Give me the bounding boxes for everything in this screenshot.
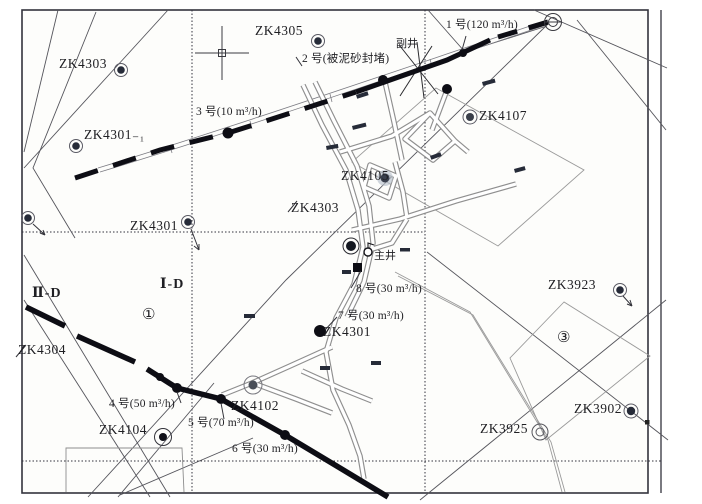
borehole-label-zk4303-nw: ZK4303	[59, 57, 107, 71]
section-line-label-I: Ⅰ-D	[160, 278, 184, 293]
inflow-label-7: 7 号(30 m³/h)	[338, 310, 404, 322]
inflow-label-4: 4 号(50 m³/h)	[109, 398, 175, 410]
mine-hydrogeology-map: ZK4303 ZK4305 ZK4301₋₁ ZK4107 ZK4105 ZK4…	[0, 0, 702, 504]
inflow-dot-extra	[156, 373, 164, 381]
borehole-label-zk4305: ZK4305	[255, 24, 303, 38]
small-square-mark	[645, 420, 650, 425]
borehole-label-zk3902: ZK3902	[574, 402, 622, 416]
inflow-label-2: 2 号(被泥砂封堵)	[302, 53, 389, 65]
borehole-label-zk4301-w: ZK4301	[130, 219, 178, 233]
map-frame	[22, 10, 661, 493]
aux-shaft-label: 副井	[396, 39, 418, 51]
inflow-dot-4	[172, 383, 182, 393]
section-line-label-II: Ⅱ-D	[32, 287, 62, 302]
borehole-label-zk3925: ZK3925	[480, 422, 528, 436]
inflow-dot-8	[353, 263, 362, 272]
zone-label-3: ③	[557, 331, 570, 347]
borehole-label-zk4301-1: ZK4301₋₁	[84, 128, 145, 142]
main-shaft-label: 主井	[374, 251, 396, 263]
inflow-dot-well	[442, 84, 452, 94]
inflow-dot-5	[216, 394, 226, 404]
inflow-label-5: 5 号(70 m³/h)	[188, 417, 254, 429]
borehole-label-zk3923: ZK3923	[548, 278, 596, 292]
borehole-label-zk4107: ZK4107	[479, 109, 527, 123]
inflow-label-8: 8 号(30 m³/h)	[356, 283, 422, 295]
main-shaft-symbol	[364, 248, 372, 256]
zone-label-1: ①	[142, 308, 155, 324]
borehole-label-zk4102: ZK4102	[231, 399, 279, 413]
inflow-label-6: 6 号(30 m³/h)	[232, 443, 298, 455]
borehole-label-zk4304: ZK4304	[18, 343, 66, 357]
inflow-dot-2	[378, 75, 388, 85]
borehole-label-zk4303-c: ZK4303	[291, 201, 339, 215]
inflow-dot-6	[280, 430, 290, 440]
borehole-label-zk4301-s: ZK4301	[323, 325, 371, 339]
borehole-label-zk4104: ZK4104	[99, 423, 147, 437]
borehole-label-zk4105: ZK4105	[341, 169, 389, 183]
inflow-label-3: 3 号(10 m³/h)	[196, 106, 262, 118]
inflow-label-1: 1 号(120 m³/h)	[446, 19, 518, 31]
inflow-dot-3	[223, 128, 234, 139]
inflow-dot-1	[459, 49, 467, 57]
